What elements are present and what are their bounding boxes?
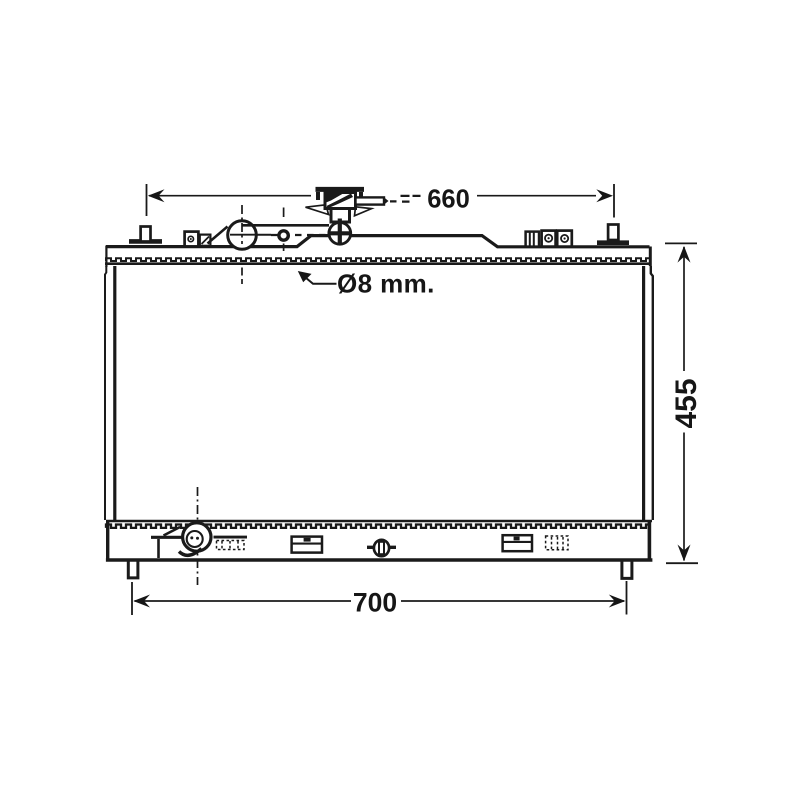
svg-text:455: 455 (670, 378, 703, 428)
svg-text:660: 660 (427, 186, 470, 214)
svg-text:Ø8 mm.: Ø8 mm. (337, 269, 435, 299)
svg-text:700: 700 (353, 588, 397, 618)
